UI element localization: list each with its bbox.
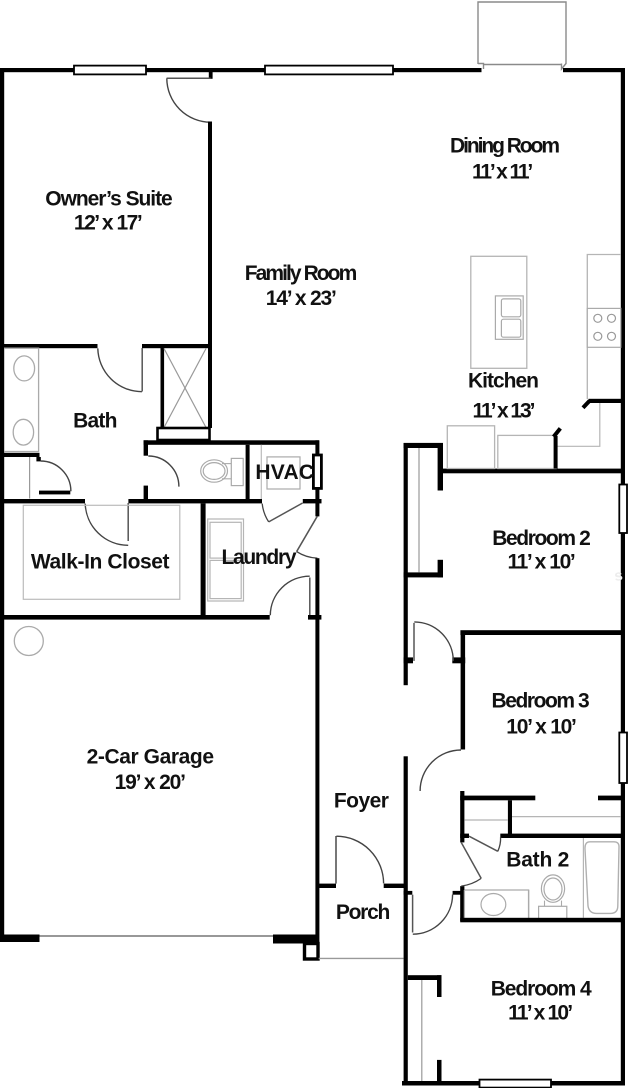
- svg-text:s⋮: s⋮: [613, 565, 628, 585]
- svg-text:Family Room: Family Room: [245, 262, 358, 285]
- svg-text:10’ x 10’: 10’ x 10’: [506, 716, 577, 739]
- svg-text:12’ x 17’: 12’ x 17’: [74, 211, 143, 234]
- svg-text:11’ x 10’: 11’ x 10’: [508, 1001, 573, 1024]
- svg-text:14’ x 23’: 14’ x 23’: [266, 287, 337, 310]
- svg-text:Bedroom 3: Bedroom 3: [491, 690, 589, 713]
- svg-text:Bedroom 2: Bedroom 2: [492, 527, 591, 550]
- svg-text:Bath: Bath: [73, 410, 117, 433]
- svg-text:Laundry: Laundry: [222, 546, 297, 569]
- svg-text:11’ x 13’: 11’ x 13’: [473, 400, 536, 423]
- svg-text:Bath 2: Bath 2: [506, 849, 569, 872]
- svg-text:Owner’s Suite: Owner’s Suite: [45, 188, 172, 211]
- svg-text:Kitchen: Kitchen: [468, 370, 539, 393]
- svg-text:Bedroom 4: Bedroom 4: [491, 977, 592, 1000]
- svg-text:2-Car Garage: 2-Car Garage: [87, 746, 214, 769]
- svg-text:Foyer: Foyer: [334, 790, 389, 813]
- svg-text:Porch: Porch: [336, 901, 390, 924]
- svg-text:11’ x 11’: 11’ x 11’: [472, 160, 533, 183]
- svg-text:Dining Room: Dining Room: [450, 135, 560, 158]
- svg-text:HVAC: HVAC: [255, 461, 314, 484]
- svg-text:11’ x 10’: 11’ x 10’: [508, 551, 576, 574]
- svg-text:Walk-In Closet: Walk-In Closet: [31, 550, 170, 573]
- svg-text:19’ x 20’: 19’ x 20’: [115, 771, 186, 794]
